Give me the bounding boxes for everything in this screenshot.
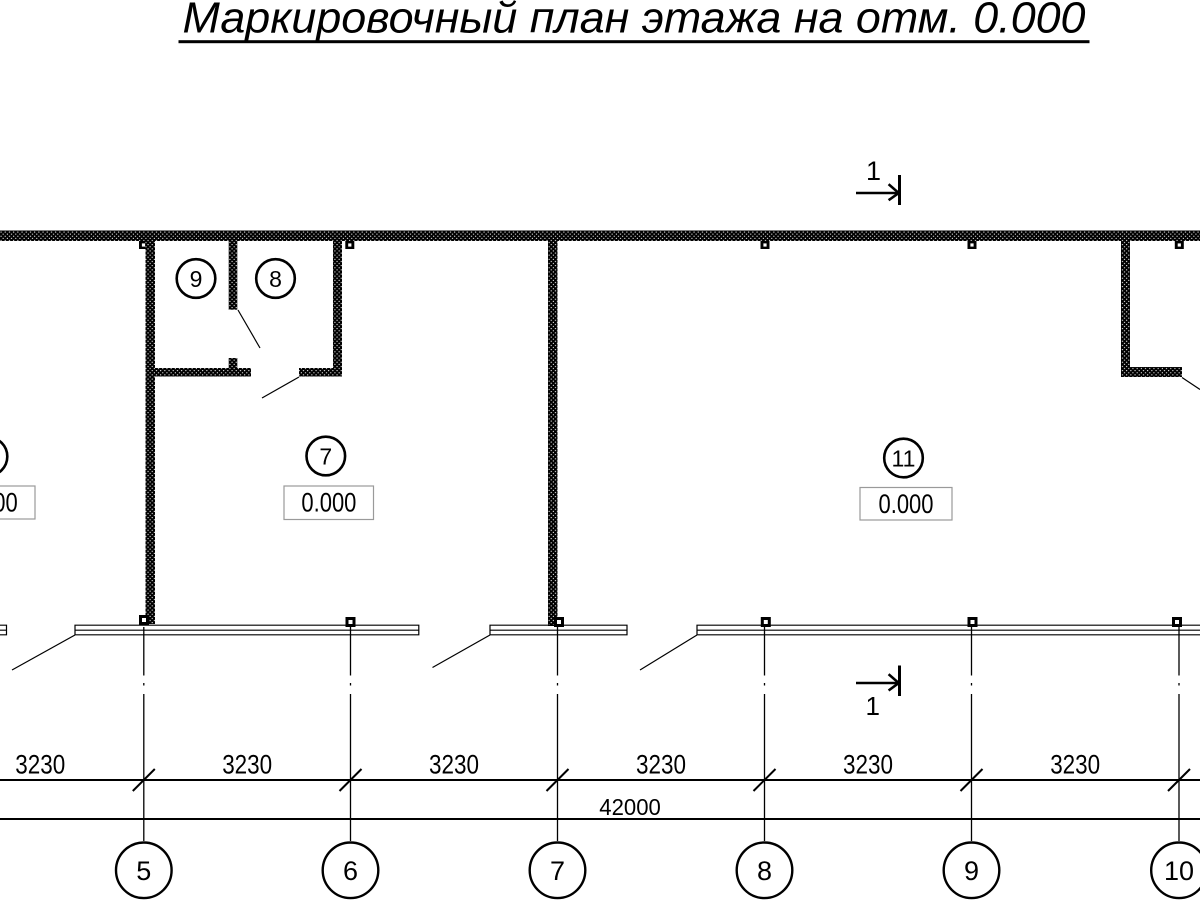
svg-text:5: 5 [136,856,151,886]
svg-text:Маркировочный план этажа на от: Маркировочный план этажа на отм. 0.000 [183,0,1087,43]
svg-text:7: 7 [550,856,565,886]
svg-text:9: 9 [964,856,979,886]
svg-text:8: 8 [269,266,282,292]
svg-text:11: 11 [892,445,916,471]
svg-text:3230: 3230 [429,750,479,780]
svg-text:3230: 3230 [222,750,272,780]
svg-text:3230: 3230 [843,750,893,780]
svg-text:0.000: 0.000 [301,488,356,518]
svg-text:3230: 3230 [15,750,65,780]
svg-text:1: 1 [866,691,880,721]
svg-text:9: 9 [190,266,203,292]
svg-text:42000: 42000 [599,794,661,820]
svg-text:3230: 3230 [636,750,686,780]
svg-text:7: 7 [319,443,332,469]
svg-text:10: 10 [1164,856,1194,886]
svg-text:8: 8 [757,856,772,886]
svg-text:6: 6 [343,856,358,886]
svg-text:0.000: 0.000 [879,489,934,519]
svg-text:1: 1 [866,156,881,186]
svg-text:0.000: 0.000 [0,488,18,518]
svg-text:3230: 3230 [1050,750,1100,780]
